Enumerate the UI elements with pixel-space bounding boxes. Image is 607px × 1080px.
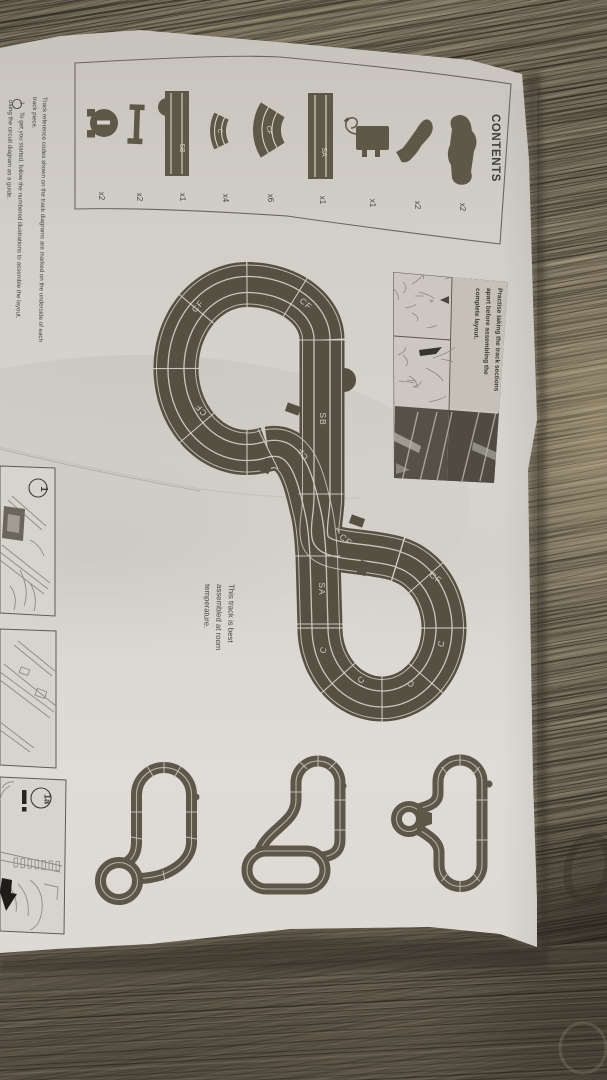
svg-text:x1: x1 (368, 199, 377, 208)
svg-text:CF: CF (265, 126, 272, 135)
svg-text:CONTENTS: CONTENTS (489, 114, 501, 182)
svg-text:track piece.: track piece. (30, 97, 38, 129)
svg-text:SA: SA (320, 147, 327, 157)
svg-text:x2: x2 (413, 201, 422, 210)
svg-text:temperature.: temperature. (202, 584, 212, 628)
svg-text:x2: x2 (135, 193, 144, 202)
svg-text:x2: x2 (458, 203, 467, 212)
svg-text:x1: x1 (318, 196, 327, 205)
svg-text:x2: x2 (97, 192, 106, 201)
svg-text:SB: SB (178, 143, 185, 153)
svg-text:assembled at room: assembled at room (214, 584, 224, 650)
svg-text:1: 1 (18, 101, 24, 104)
svg-text:x6: x6 (266, 194, 275, 203)
svg-text:This track is best: This track is best (226, 584, 236, 643)
svg-text:C: C (216, 129, 223, 134)
svg-text:x4: x4 (221, 194, 230, 203)
svg-text:1a: 1a (43, 794, 53, 805)
svg-text:SB: SB (318, 412, 328, 425)
svg-text:x1: x1 (178, 193, 187, 202)
svg-text:1: 1 (38, 486, 49, 492)
svg-text:SA: SA (317, 582, 327, 595)
